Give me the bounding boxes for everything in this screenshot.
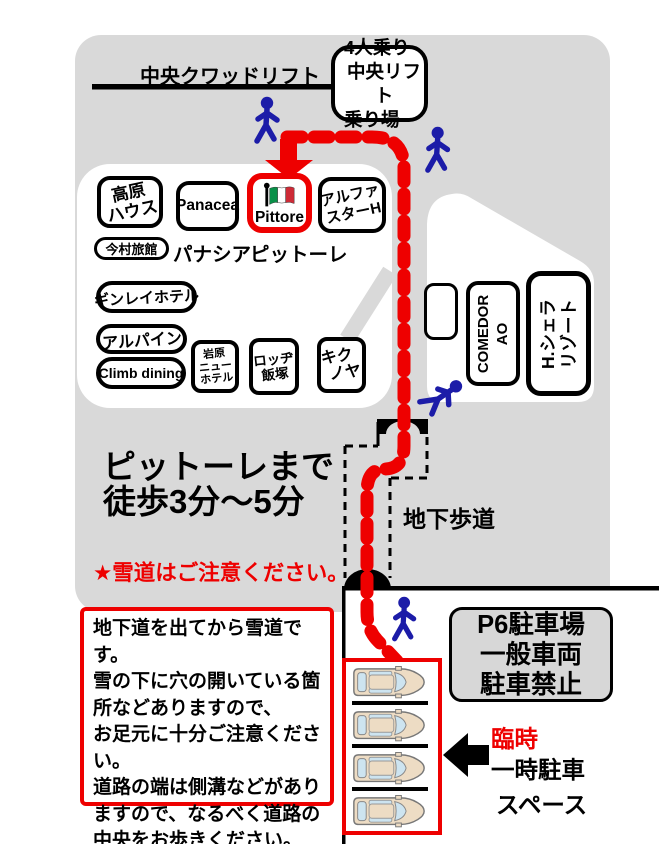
building-comedor-ao: COMEDOR AO [466,281,520,386]
building-panacea: Panacea [176,181,239,231]
alpine-label: アルパイン [101,324,182,354]
lift-line-label: 中央クワッドリフト [140,60,320,89]
p6-line1: P6駐車場 [477,610,585,640]
building-imamura-ryokan: 今村旅館 [94,237,169,260]
building-kogen-house: 高原 ハウス [97,176,163,228]
snow-caution-note: ★雪道はご注意ください。 [93,556,349,587]
warning-line1: 地下道を出てから雪道です。 [93,616,321,669]
building-alpine: アルパイン [96,324,187,354]
pittore-reading-label: ピットーレ [250,238,348,267]
walk-note-line2: 徒歩3分～5分 [103,484,334,519]
building-climb-dining: Climb dining [96,357,186,389]
building-iwappara-new-hotel: 岩原 ニュー ホテル [191,340,239,393]
iwappara-line3: ホテル [199,371,233,387]
lift-station-line3: 乗り場 [344,108,400,132]
building-pittore: Pittore [247,173,312,233]
warning-line3: 所などありますので、 [93,696,321,723]
building-ginrei-hotel: ギンレイホテル [96,281,197,313]
pittore-access-map: 中央クワッドリフト 4人乗り 中央リフト 乗り場 高原 ハウス Panacea … [0,0,659,844]
lift-station-line2: 中央リフト [344,60,424,108]
comedor-line1: COMEDOR [474,294,493,372]
climb-dining-label: Climb dining [99,365,184,381]
building-lodge-iizuka: ロッヂ 飯塚 [249,338,299,395]
p6-line3: 駐車禁止 [480,670,582,700]
italian-flag-icon [263,182,297,209]
underpass-label: 地下歩道 [403,500,495,534]
kikuya-line2: ノヤ [329,362,363,383]
temp-parking-line2: 一時駐車 [491,751,585,785]
p6-parking-sign: P6駐車場 一般車両 駐車禁止 [449,607,613,702]
sierra-line2: リゾート [559,299,580,369]
ginrei-label: ギンレイホテル [94,284,200,310]
temporary-parking-arrow-icon [443,733,489,777]
lift-station-box: 4人乗り 中央リフト 乗り場 [331,45,428,122]
lift-station-line1: 4人乗り [344,36,410,60]
warning-line5: 道路の端は側溝などがあり [93,775,321,802]
warning-line7: 中央をお歩きください。 [93,828,321,844]
panacea-reading-label: パナシア [173,238,251,267]
building-alpha-star: アルファ スターH [318,177,386,233]
pittore-box-label: Pittore [255,209,304,227]
walking-time-note: ピットーレまで 徒歩3分～5分 [103,449,334,519]
warning-line2: 雪の下に穴の開いている箇 [93,669,321,696]
temp-parking-line3: スペース [496,786,587,820]
warning-line6: ますので、なるべく道路の [93,802,321,829]
panacea-box-label: Panacea [176,197,239,215]
warning-line4: お足元に十分ご注意ください。 [93,722,321,775]
comedor-line2: AO [493,294,512,372]
snow-warning-box: 地下道を出てから雪道です。 雪の下に穴の開いている箇 所などありますので、 お足… [80,607,334,806]
sierra-line1: H.シェラ [538,299,559,369]
building-kikuya: キク ノヤ [317,337,366,393]
building-unlabeled [424,283,458,340]
imamura-label: 今村旅館 [105,239,157,258]
building-hotel-sierra-resort: H.シェラ リゾート [526,271,591,396]
walk-note-line1: ピットーレまで [103,449,334,484]
p6-line2: 一般車両 [480,640,582,670]
temp-parking-line1: 臨時 [491,720,538,754]
